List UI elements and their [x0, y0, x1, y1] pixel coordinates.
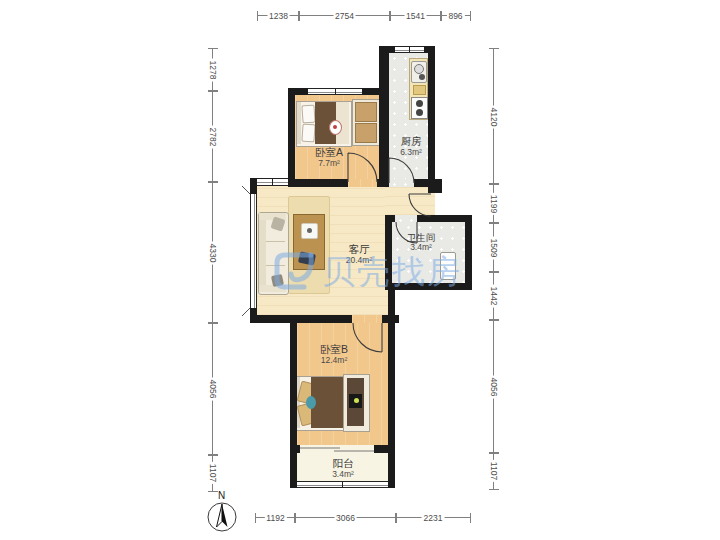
dimension-value: 1192: [264, 514, 286, 523]
dimension-left: 1278: [208, 48, 218, 92]
room-label-bedroomB: 卧室B 12.4m²: [309, 344, 359, 365]
wall-segment: [388, 453, 395, 488]
wall-segment: [290, 445, 300, 453]
compass-north-label: N: [218, 490, 225, 501]
dimension-value: 1107: [490, 460, 499, 482]
bay-window-living: [250, 194, 257, 308]
dimension-value: 1509: [490, 236, 499, 259]
window-mullion: [335, 88, 336, 95]
room-area: 12.4m²: [321, 356, 347, 365]
dimension-top: 896: [440, 11, 471, 21]
wall-segment: [417, 215, 472, 222]
dimension-left: 4056: [208, 322, 218, 456]
wall-segment: [290, 315, 297, 453]
dimension-left: 2782: [208, 90, 218, 183]
wardrobe-bedroomB: [343, 374, 370, 432]
dimension-value: 4056: [490, 375, 499, 398]
wall-segment: [414, 179, 428, 187]
room-name: 阳台: [333, 458, 354, 470]
bed-bedroomB: [295, 376, 345, 431]
cutting-board: [413, 85, 426, 95]
wall-segment: [465, 215, 472, 290]
bed-headboard: [297, 102, 301, 144]
burner: [416, 109, 423, 116]
room-area: 6.3m²: [400, 148, 422, 157]
wall-segment: [428, 179, 442, 193]
bed-decor: [329, 120, 342, 135]
bed-bedroomA: [296, 101, 352, 147]
wall-segment: [250, 178, 257, 194]
stove: [411, 97, 428, 119]
doorway-entry: [428, 193, 435, 215]
teal-decor: [306, 396, 316, 409]
wall-segment: [388, 315, 395, 453]
compass-icon: [208, 503, 236, 531]
bay-window-ticks: [242, 186, 250, 316]
kitchen-counter: [409, 58, 428, 120]
dimension-right: 4120: [489, 48, 499, 185]
room-label-bedroomA: 卧室A 7.7m²: [304, 147, 354, 168]
dimension-value: 2754: [333, 12, 356, 21]
tv-box: [349, 394, 362, 408]
wall-segment: [290, 453, 297, 488]
dimension-value: 1199: [490, 192, 499, 214]
dimension-left: 1107: [208, 454, 218, 492]
room-area: 3.4m²: [332, 470, 354, 479]
dimension-value: 1541: [404, 12, 427, 21]
wall-segment: [379, 46, 395, 53]
window-mullion: [342, 481, 343, 488]
dimension-left: 4330: [208, 181, 218, 324]
dimension-bottom: 1192: [255, 513, 296, 523]
dimension-value: 4330: [209, 241, 218, 264]
window-mullion: [272, 178, 273, 186]
dimension-right: 1509: [489, 222, 499, 273]
decor-dot: [333, 125, 337, 129]
kitchen-sink: [411, 61, 427, 83]
tv-light: [354, 398, 359, 403]
dimension-bottom: 3066: [294, 513, 397, 523]
sofa-seam: [266, 241, 285, 242]
doorway-bedroomA: [348, 179, 377, 187]
wall-segment: [288, 179, 348, 187]
room-name: 卧室A: [315, 147, 343, 159]
room-name: 厨房: [401, 136, 422, 148]
wardrobe-panel: [355, 102, 377, 122]
sink-basin: [414, 64, 424, 74]
watermark-text: 贝壳找房: [322, 250, 462, 295]
pillow: [301, 105, 315, 124]
room-label-balcony: 阳台 3.4m²: [318, 458, 368, 479]
dimension-right: 1199: [489, 183, 499, 224]
dimension-top: 2754: [298, 11, 391, 21]
dimension-value: 2782: [209, 125, 218, 148]
window-mullion: [409, 46, 410, 53]
room-label-kitchen: 厨房 6.3m²: [386, 136, 436, 157]
dimension-value: 2231: [422, 514, 445, 523]
sofa-back: [259, 213, 266, 292]
plate-item: [307, 228, 312, 233]
wall-segment: [379, 46, 389, 187]
dimension-value: 1238: [267, 12, 290, 21]
wardrobe-bedroomA: [352, 99, 380, 146]
throw-pillow: [270, 216, 285, 231]
doorway-kitchen: [389, 179, 414, 187]
wardrobe-panel: [355, 123, 377, 143]
doorway-bathroom: [395, 215, 417, 222]
wall-segment: [374, 445, 395, 453]
dimension-value: 1278: [209, 59, 218, 82]
dimension-value: 1442: [490, 285, 499, 308]
pillow: [301, 124, 315, 143]
floor-hallway: [385, 187, 428, 215]
dimension-right: 4056: [489, 319, 499, 454]
wall-segment: [250, 315, 352, 323]
wall-segment: [428, 46, 435, 187]
dimension-bottom: 2231: [395, 513, 471, 523]
room-name: 卧室B: [320, 344, 348, 356]
dimension-value: 896: [446, 12, 464, 21]
dimension-top: 1541: [389, 11, 442, 21]
floorplan-canvas: 卧室A 7.7m² 厨房 6.3m² 客厅 20.4m² 卫生间 3.4m² 卧…: [0, 0, 720, 540]
dimension-right: 1442: [489, 271, 499, 321]
dimension-top: 1238: [257, 11, 300, 21]
doorway-bedroomB: [352, 315, 382, 323]
wall-segment: [288, 88, 295, 186]
beike-shell-logo-icon: [271, 247, 319, 295]
dimension-value: 1107: [209, 462, 218, 484]
wall-segment: [288, 88, 308, 95]
sink-drain: [419, 74, 425, 80]
dimension-value: 4120: [490, 105, 499, 128]
dimension-value: 4056: [209, 378, 218, 401]
table-plate: [301, 223, 318, 239]
dimension-value: 3066: [334, 514, 357, 523]
burner: [416, 100, 423, 107]
room-area: 7.7m²: [318, 159, 340, 168]
dimension-right: 1107: [489, 452, 499, 490]
doorway-balcony: [300, 445, 374, 453]
